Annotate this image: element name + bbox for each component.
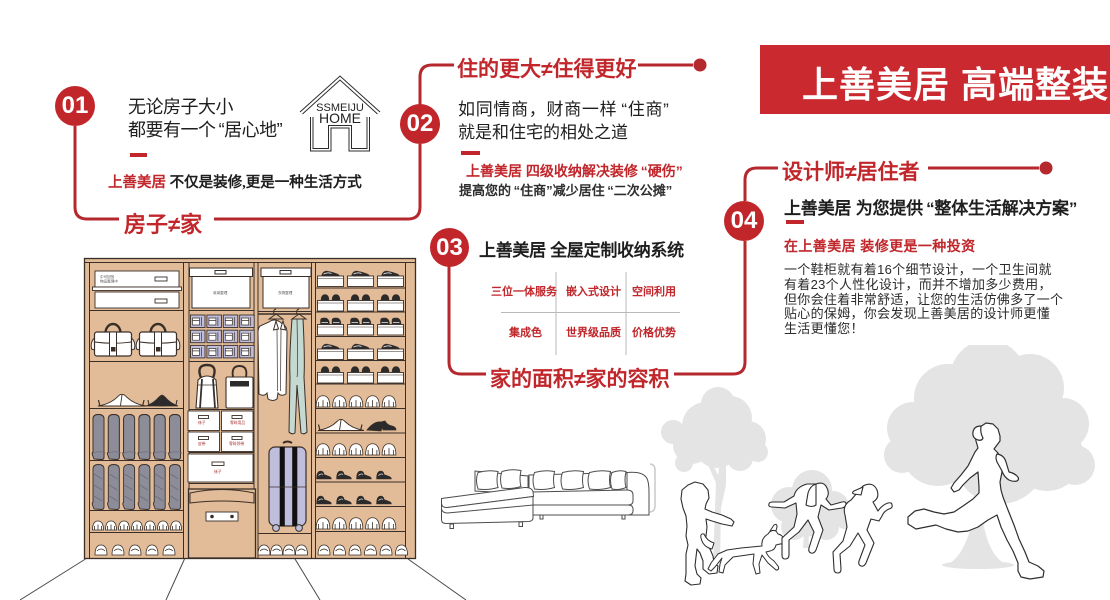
svg-text:HOME: HOME: [319, 110, 361, 126]
